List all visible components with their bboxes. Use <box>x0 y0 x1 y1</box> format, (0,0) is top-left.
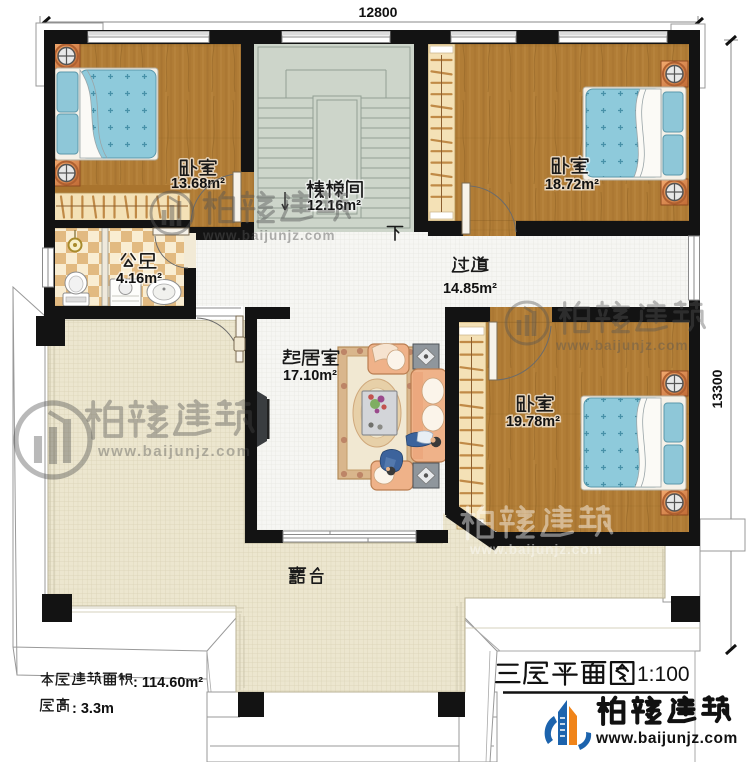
svg-text:17.10m²: 17.10m² <box>283 368 337 384</box>
svg-text:14.85m²: 14.85m² <box>443 281 497 297</box>
svg-text:: 3.3m: : 3.3m <box>72 701 114 717</box>
svg-text:www.baijunjz.com: www.baijunjz.com <box>595 730 738 747</box>
svg-text:13.68m²: 13.68m² <box>171 176 225 192</box>
svg-text:13300: 13300 <box>709 369 725 408</box>
svg-text:19.78m²: 19.78m² <box>506 414 560 430</box>
svg-text:1:100: 1:100 <box>637 663 690 686</box>
svg-text:www.baijunjz.com: www.baijunjz.com <box>97 443 251 460</box>
svg-text:www.baijunjz.com: www.baijunjz.com <box>469 542 603 557</box>
svg-text:www.baijunjz.com: www.baijunjz.com <box>555 338 689 353</box>
svg-text:www.baijunjz.com: www.baijunjz.com <box>202 228 336 243</box>
svg-text:: 114.60m²: : 114.60m² <box>133 675 203 691</box>
svg-text:12800: 12800 <box>359 4 398 20</box>
svg-text:4.16m²: 4.16m² <box>116 271 162 287</box>
svg-text:18.72m²: 18.72m² <box>545 177 599 193</box>
